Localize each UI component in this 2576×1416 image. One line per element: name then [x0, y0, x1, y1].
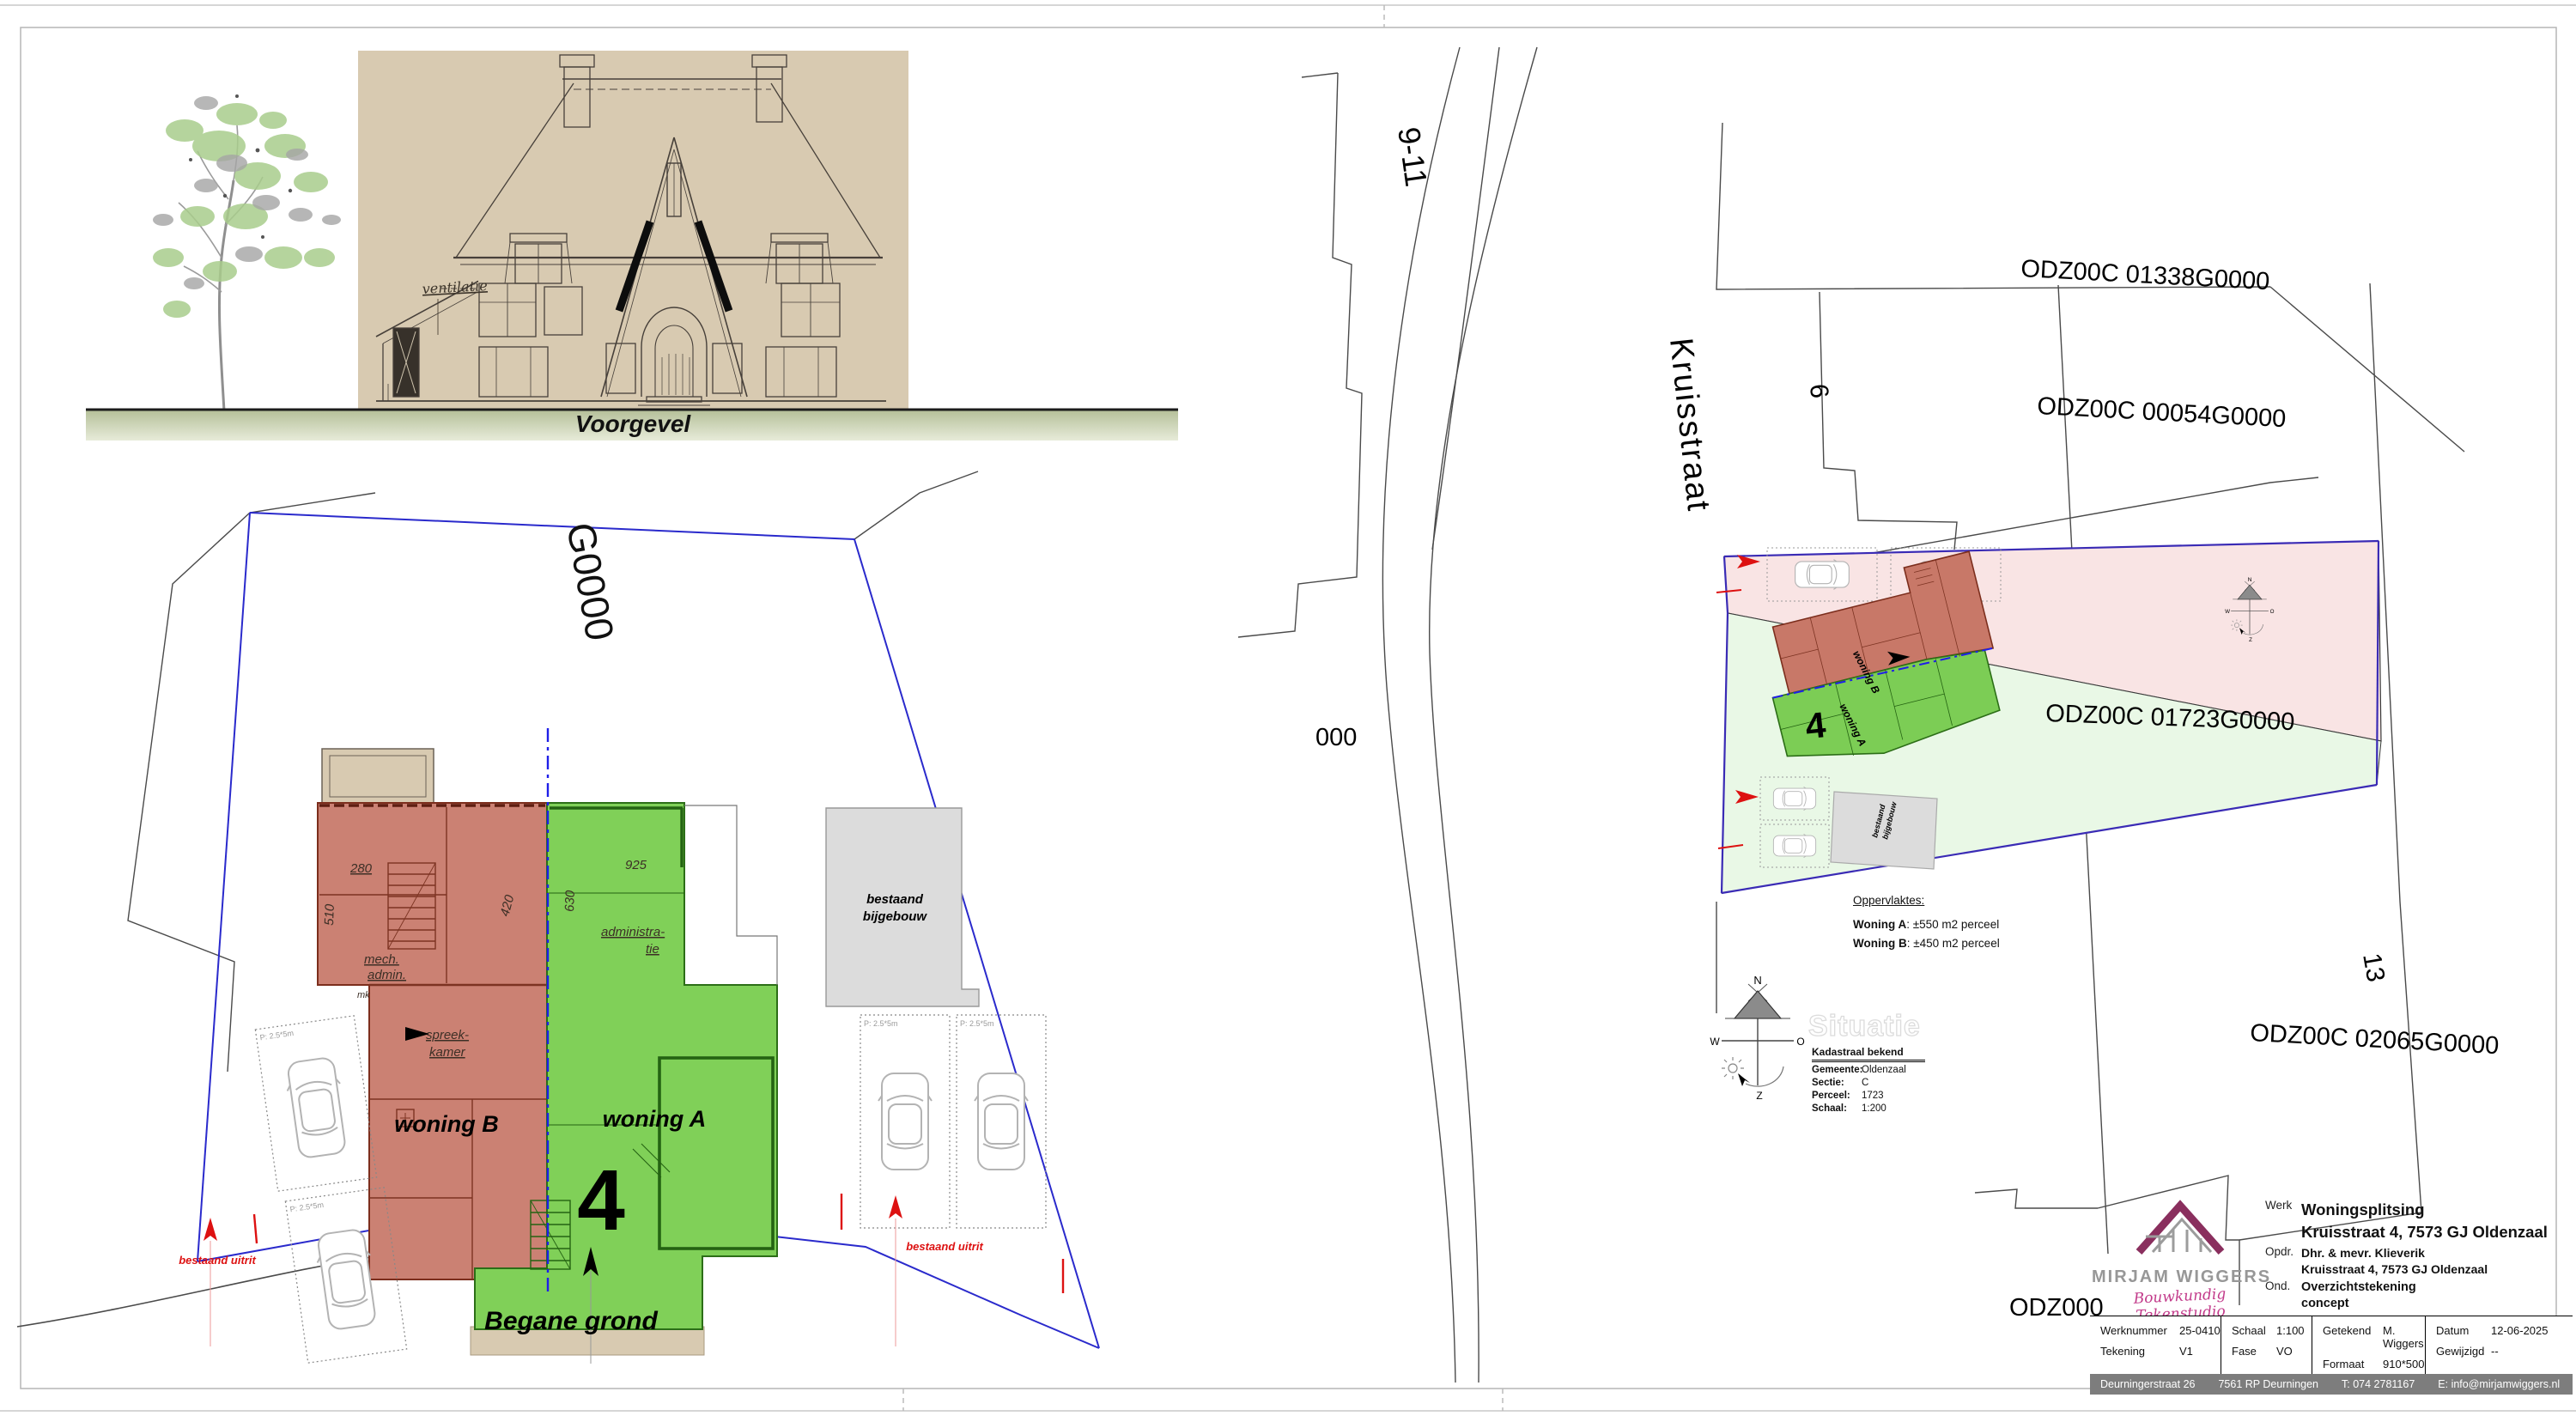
bijgebouw-label-1: bestaand — [866, 892, 924, 907]
svg-text:mech.: mech. — [364, 952, 399, 967]
woning-b-label: woning B — [394, 1111, 498, 1137]
title-block-footer: Deurningerstraat 26 7561 RP Deurningen T… — [2090, 1374, 2573, 1395]
partial-label-left: 000 — [1315, 724, 1357, 751]
svg-text:P: 2.5*5m: P: 2.5*5m — [960, 1019, 994, 1028]
scan-paper — [358, 51, 908, 410]
house-13: 13 — [2357, 951, 2390, 984]
svg-text:tie: tie — [646, 942, 659, 957]
elevation-title: Voorgevel — [575, 410, 692, 437]
street-label: Kruisstraat — [1662, 337, 1716, 514]
svg-text:P: 2.5*5m: P: 2.5*5m — [289, 1200, 325, 1213]
oppervlaktes-block: Oppervlaktes: Woning A: ±550 m2 perceel … — [1853, 891, 2000, 953]
svg-text:administra-: administra- — [601, 925, 665, 939]
parcel-label-02065: ODZ00C 02065G0000 — [2250, 1019, 2500, 1060]
svg-text:P: 2.5*5m: P: 2.5*5m — [864, 1019, 898, 1028]
oppervlaktes-row-b: Woning B: ±450 m2 perceel — [1853, 934, 2000, 953]
tree-illustration — [153, 94, 341, 427]
svg-text:925: 925 — [625, 858, 647, 872]
svg-text:mk: mk — [357, 990, 370, 1000]
partial-parcel-label: G0000 — [558, 520, 623, 644]
svg-text:P: 2.5*5m: P: 2.5*5m — [259, 1029, 295, 1042]
oppervlaktes-title: Oppervlaktes: — [1853, 891, 2000, 910]
kadastraal-row: Gemeente:Oldenzaal — [1812, 1064, 1925, 1077]
svg-text:510: 510 — [322, 903, 337, 926]
bijgebouw-label-2: bijgebouw — [863, 909, 927, 924]
kadastraal-row: Perceel:1723 — [1812, 1090, 1925, 1103]
field-schaal: Schaal1:100 — [2232, 1324, 2312, 1337]
parcel-label-00054: ODZ00C 00054G0000 — [2037, 392, 2287, 433]
drawing-sheet: N W O Z — [0, 0, 2576, 1416]
ventilatie-label: ventilatie — [422, 277, 488, 297]
house-6: 6 — [1804, 383, 1833, 400]
house-9-11: 9-11 — [1391, 125, 1434, 188]
werk-line2: Kruisstraat 4, 7573 GJ Oldenzaal — [2301, 1223, 2548, 1241]
svg-text:bestaand uitrit: bestaand uitrit — [179, 1254, 256, 1267]
parcel-label-01338: ODZ00C 01338G0000 — [2020, 255, 2270, 295]
svg-text:spreek-: spreek- — [426, 1028, 469, 1042]
svg-text:kamer: kamer — [429, 1045, 466, 1060]
field-fase: FaseVO — [2232, 1345, 2312, 1358]
werk-line1: Woningsplitsing — [2301, 1200, 2425, 1218]
parking-right: P: 2.5*5m P: 2.5*5m — [860, 1015, 1046, 1228]
house-number: 4 — [577, 1152, 625, 1249]
footer-email: E: info@mirjamwiggers.nl — [2438, 1378, 2560, 1390]
floor-plan-title: Begane grond — [484, 1307, 658, 1335]
situatie-title: Situatie — [1808, 1010, 1921, 1043]
footer-city: 7561 RP Deurningen — [2218, 1378, 2318, 1390]
opdr-line1: Dhr. & mevr. Klieverik — [2301, 1246, 2425, 1260]
kadastraal-row: Sectie:C — [1812, 1077, 1925, 1090]
field-gewijzigd: Gewijzigd-- — [2436, 1345, 2573, 1358]
kadastraal-title: Kadastraal bekend — [1812, 1046, 1925, 1062]
oppervlaktes-row-a: Woning A: ±550 m2 perceel — [1853, 915, 2000, 934]
floor-plan: G0000 — [17, 471, 1099, 1364]
svg-text:bestaand uitrit: bestaand uitrit — [906, 1240, 983, 1253]
opdr-label: Opdr. — [2265, 1245, 2301, 1278]
footer-phone: T: 074 2781167 — [2342, 1378, 2415, 1390]
bijgebouw-building — [826, 808, 979, 1006]
brand-house-icon — [2129, 1197, 2232, 1266]
kadastraal-row: Schaal:1:200 — [1812, 1103, 1925, 1115]
title-block: MIRJAM WIGGERS Bouwkundig Tekenstudio We… — [2090, 1183, 2573, 1395]
opdr-line2: Kruisstraat 4, 7573 GJ Oldenzaal — [2301, 1262, 2488, 1276]
field-formaat: Formaat910*500 — [2323, 1358, 2425, 1370]
site-plan: woning B woning A 4 bestaand bijgebouw K… — [1238, 47, 2500, 1383]
ond-line2: concept — [2301, 1297, 2349, 1310]
svg-text:630: 630 — [562, 890, 578, 912]
ond-line1: Overzichtstekening — [2301, 1280, 2416, 1294]
brand-logo: MIRJAM WIGGERS Bouwkundig Tekenstudio — [2092, 1197, 2269, 1322]
kadastraal-block: Kadastraal bekend Gemeente:Oldenzaal Sec… — [1812, 1046, 1925, 1115]
svg-text:280: 280 — [349, 861, 373, 876]
field-tekening: TekeningV1 — [2100, 1345, 2221, 1358]
werk-label: Werk — [2265, 1199, 2301, 1243]
svg-text:admin.: admin. — [368, 968, 406, 982]
field-datum: Datum12-06-2025 — [2436, 1324, 2573, 1337]
field-werknummer: Werknummer25-0410 — [2100, 1324, 2221, 1337]
field-getekend: GetekendM. Wiggers — [2323, 1324, 2425, 1350]
woning-a-label: woning A — [603, 1106, 706, 1132]
compass-large — [1710, 974, 1804, 1102]
title-block-fields: Werknummer25-0410 TekeningV1 Schaal1:100… — [2090, 1316, 2573, 1375]
ond-label: Ond. — [2265, 1279, 2301, 1312]
footer-address: Deurningerstraat 26 — [2100, 1378, 2195, 1390]
project-info: Werk Woningsplitsing Kruisstraat 4, 7573… — [2265, 1199, 2573, 1314]
